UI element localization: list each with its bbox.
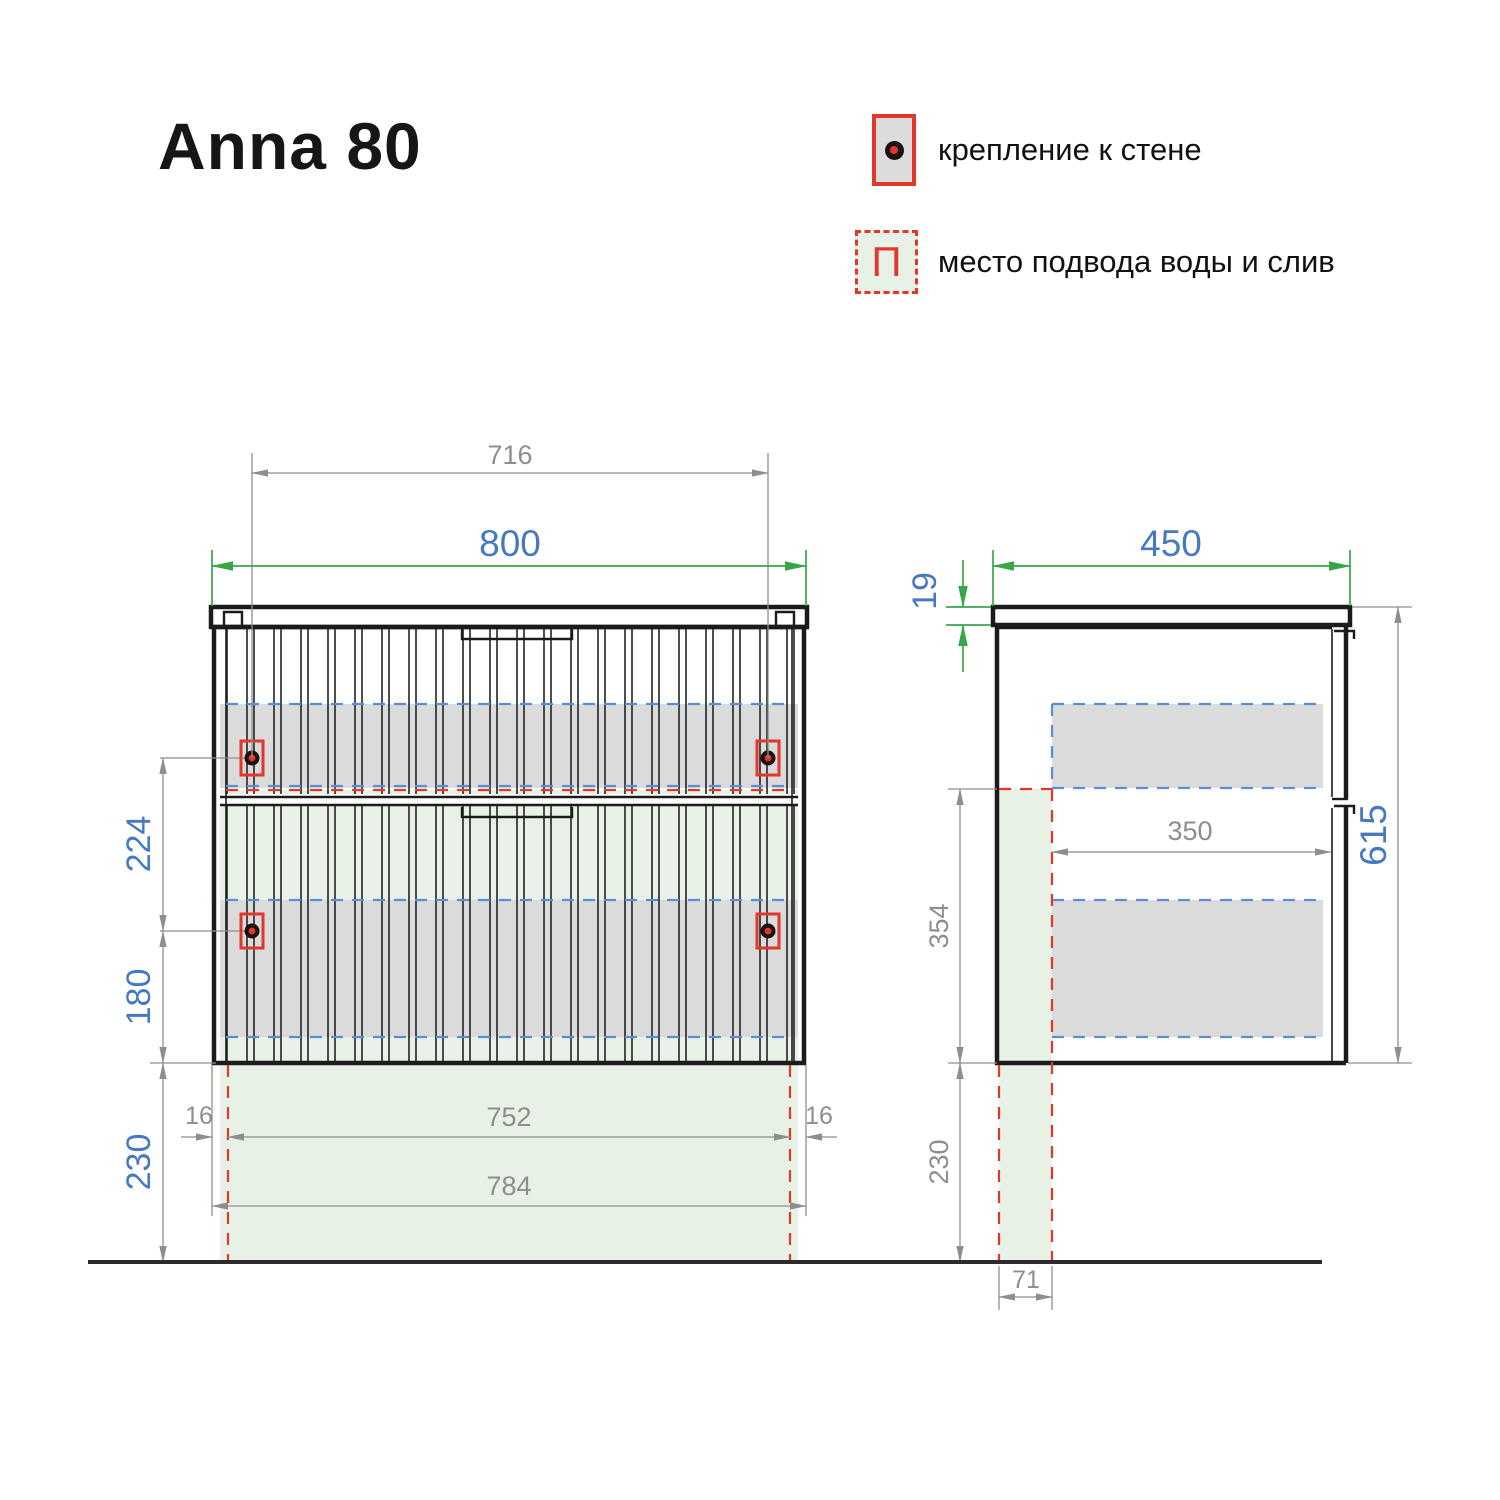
fluted-facade-texture [221, 629, 797, 1061]
front-view: 716 800 224 180 230 16 16 752 784 [120, 440, 837, 1262]
dim-16-right: 16 [805, 1102, 833, 1130]
dim-752: 752 [486, 1102, 531, 1132]
side-view: 450 19 615 350 354 230 [906, 523, 1412, 1310]
dim-224: 224 [120, 816, 158, 873]
dim-16-left: 16 [185, 1102, 213, 1130]
technical-drawing: 716 800 224 180 230 16 16 752 784 [0, 0, 1500, 1500]
dim-180: 180 [120, 969, 158, 1026]
dim-784: 784 [486, 1171, 531, 1201]
dim-71: 71 [1012, 1266, 1040, 1294]
side-water-zone [999, 789, 1052, 1262]
side-countertop [993, 607, 1350, 625]
side-lower-mount-band [1052, 900, 1323, 1037]
dim-230-front: 230 [120, 1134, 158, 1191]
dim-615: 615 [1353, 804, 1394, 866]
dim-450: 450 [1140, 523, 1202, 564]
front-countertop [211, 607, 807, 627]
dim-350: 350 [1167, 816, 1212, 846]
side-upper-mount-band [1052, 704, 1323, 788]
dim-19: 19 [906, 572, 944, 610]
dim-230-side: 230 [924, 1139, 954, 1184]
dim-800: 800 [479, 523, 541, 564]
dim-716: 716 [487, 440, 532, 470]
drawing-sheet: Anna 80 крепление к стене П место подвод… [0, 0, 1500, 1500]
dim-354: 354 [924, 903, 954, 948]
